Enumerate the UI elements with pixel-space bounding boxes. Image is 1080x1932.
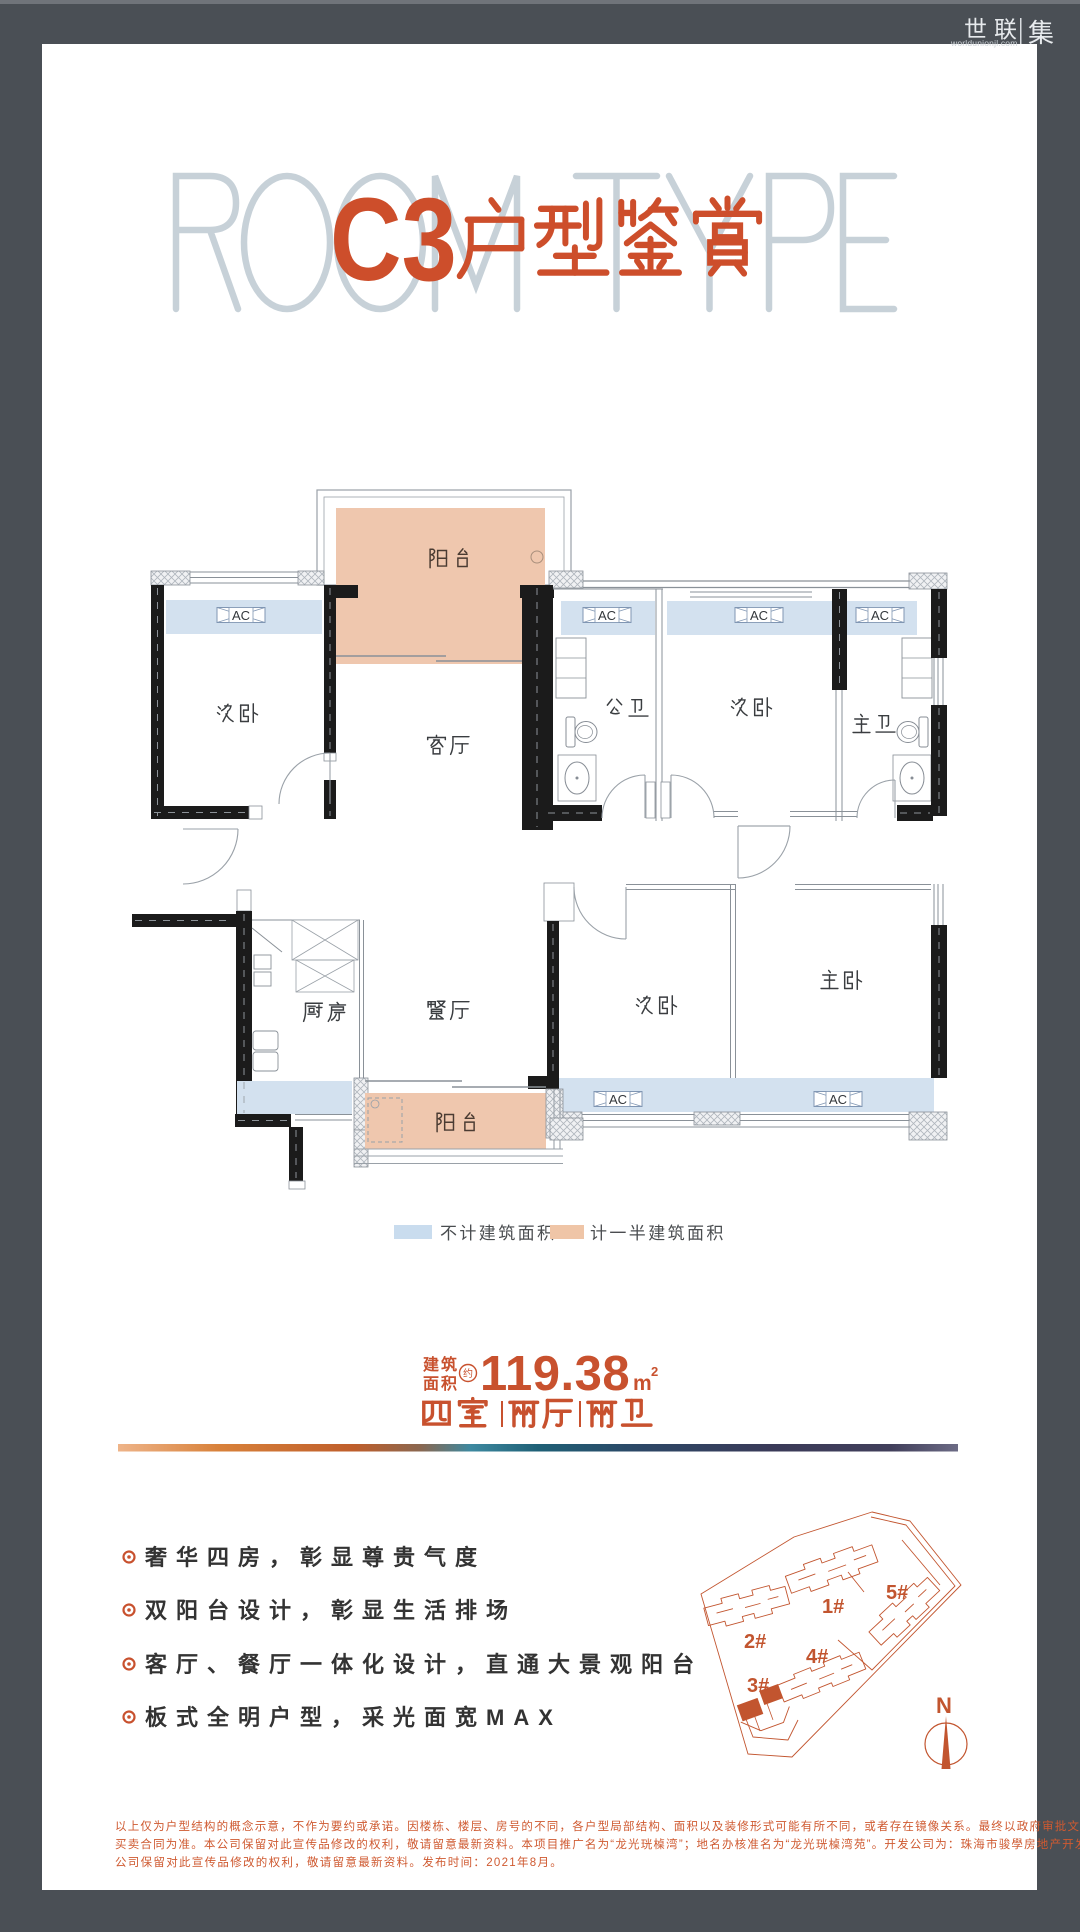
svg-text:C3: C3: [330, 174, 457, 306]
svg-text:不计建筑面积: 不计建筑面积: [440, 1224, 556, 1243]
svg-text:1#: 1#: [822, 1596, 844, 1618]
svg-text:计一半建筑面积: 计一半建筑面积: [590, 1224, 726, 1243]
svg-text:公司保留对此宣传品修改的权利，敬请留意最新资料。发布时间：2: 公司保留对此宣传品修改的权利，敬请留意最新资料。发布时间：2021年8月。: [115, 1855, 563, 1869]
svg-text:5#: 5#: [886, 1582, 908, 1604]
svg-text:m: m: [633, 1372, 652, 1395]
svg-text:N: N: [936, 1693, 952, 1718]
svg-text:面积: 面积: [423, 1375, 459, 1393]
svg-text:客厅、餐厅一体化设计，直通大景观阳台: 客厅、餐厅一体化设计，直通大景观阳台: [145, 1652, 703, 1677]
svg-text:集: 集: [1028, 18, 1054, 48]
svg-text:板式全明户型，采光面宽MAX: 板式全明户型，采光面宽MAX: [145, 1705, 562, 1730]
svg-text:4#: 4#: [806, 1646, 828, 1668]
svg-text:双阳台设计，彰显生活排场: 双阳台设计，彰显生活排场: [145, 1598, 517, 1623]
svg-text:2: 2: [651, 1364, 658, 1379]
svg-text:约: 约: [463, 1367, 473, 1380]
svg-text:worldunionjl.com: worldunionjl.com: [950, 38, 1018, 48]
svg-text:119.38: 119.38: [480, 1347, 630, 1401]
svg-text:2#: 2#: [744, 1631, 766, 1653]
svg-text:3#: 3#: [747, 1675, 769, 1697]
svg-text:奢华四房，彰显尊贵气度: 奢华四房，彰显尊贵气度: [144, 1545, 486, 1570]
svg-text:建筑: 建筑: [423, 1355, 459, 1374]
svg-text:买卖合同为准。本公司保留对此宣传品修改的权利，敬请留意最新资: 买卖合同为准。本公司保留对此宣传品修改的权利，敬请留意最新资料。本项目推广名为“…: [115, 1837, 1080, 1851]
svg-text:以上仅为户型结构的概念示意，不作为要约或承诺。因楼栋、楼层、: 以上仅为户型结构的概念示意，不作为要约或承诺。因楼栋、楼层、房号的不同，各户型局…: [115, 1819, 1080, 1833]
